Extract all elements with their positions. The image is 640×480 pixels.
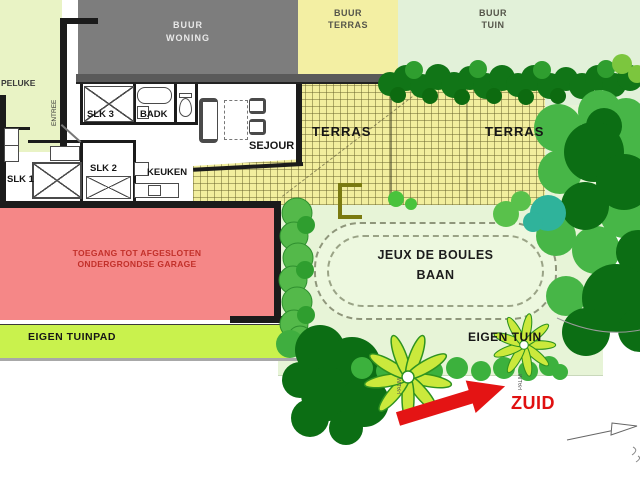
garden-label: EIGEN TUIN (468, 330, 542, 345)
terrace-label-left: TERRAS (312, 124, 371, 140)
pencil-arrow-icon (567, 423, 640, 462)
palm-label: PALM (397, 364, 403, 394)
room-label-slk3: SLK 3 (87, 109, 114, 121)
room-label-slk1: SLK 1 (7, 174, 34, 186)
neighbor-terrace-label: BUUR TERRAS (298, 8, 398, 31)
garden-path-label: EIGEN TUINPAD (28, 331, 116, 344)
terrace-edge-bush (388, 191, 417, 210)
entrance-label: ENTREE (51, 86, 58, 126)
south-label: ZUID (511, 392, 555, 415)
palm-label: PALM (518, 362, 524, 390)
room-label-slk2: SLK 2 (90, 163, 117, 175)
left-border-bushes (279, 198, 315, 350)
room-label-sejour: SEJOUR (249, 140, 294, 154)
room-label-keuken: KEUKEN (147, 167, 187, 179)
room-label-badk: BADK (140, 109, 167, 121)
neighbor-garden-label: BUUR TUIN (428, 8, 558, 31)
terrace-label-right: TERRAS (485, 124, 544, 140)
porch-label: PELUKE (1, 78, 35, 89)
garden-floor-plan: BUUR WONING TOEGANG TOT AFGESLOTEN ONDER… (0, 0, 640, 480)
